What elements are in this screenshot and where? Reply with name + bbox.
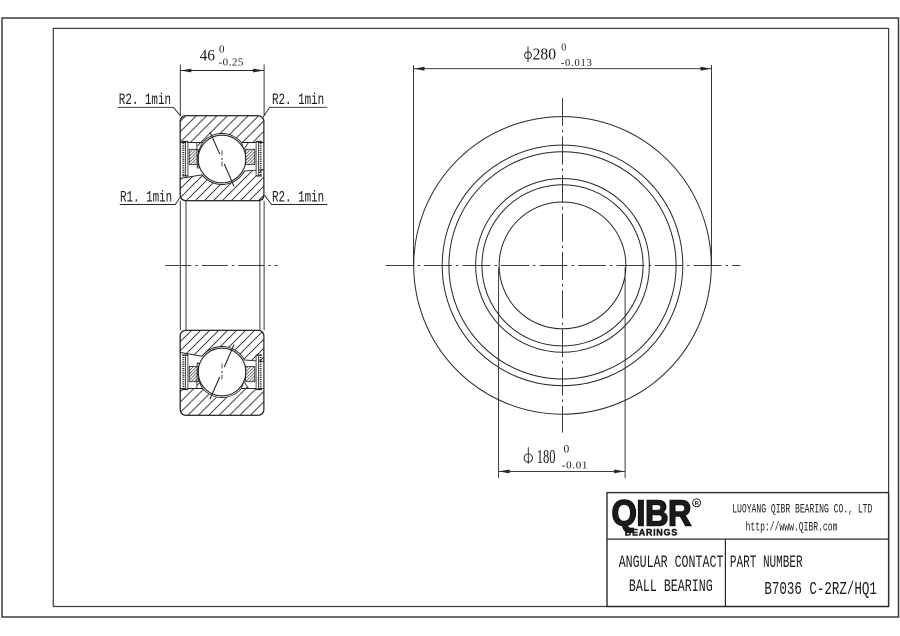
svg-text:R2. 1min: R2. 1min [272,93,324,111]
svg-text:B7036 C-2RZ/HQ1: B7036 C-2RZ/HQ1 [764,579,877,600]
svg-text:0: 0 [561,43,566,54]
svg-text:BEARINGS: BEARINGS [625,528,678,538]
svg-text:-0.013: -0.013 [561,58,593,69]
svg-text:46: 46 [200,47,216,64]
svg-text:ANGULAR CONTACT: ANGULAR CONTACT [619,554,724,573]
svg-text:180: 180 [537,445,556,468]
svg-text:-0.25: -0.25 [219,57,244,69]
svg-text:BALL BEARING: BALL BEARING [629,578,713,597]
svg-text:R2. 1min: R2. 1min [272,190,324,208]
svg-text:R1. 1min: R1. 1min [120,190,172,208]
svg-text:PART NUMBER: PART NUMBER [730,554,803,573]
svg-text:R2. 1min: R2. 1min [119,93,171,111]
svg-text:0: 0 [564,444,570,456]
svg-text:-0.01: -0.01 [562,460,588,472]
svg-text:280: 280 [533,46,556,64]
svg-text:http://www.QIBR.com: http://www.QIBR.com [746,521,838,535]
svg-text:0: 0 [219,43,225,55]
svg-text:LUOYANG QIBR BEARING CO., LTD: LUOYANG QIBR BEARING CO., LTD [732,503,872,517]
